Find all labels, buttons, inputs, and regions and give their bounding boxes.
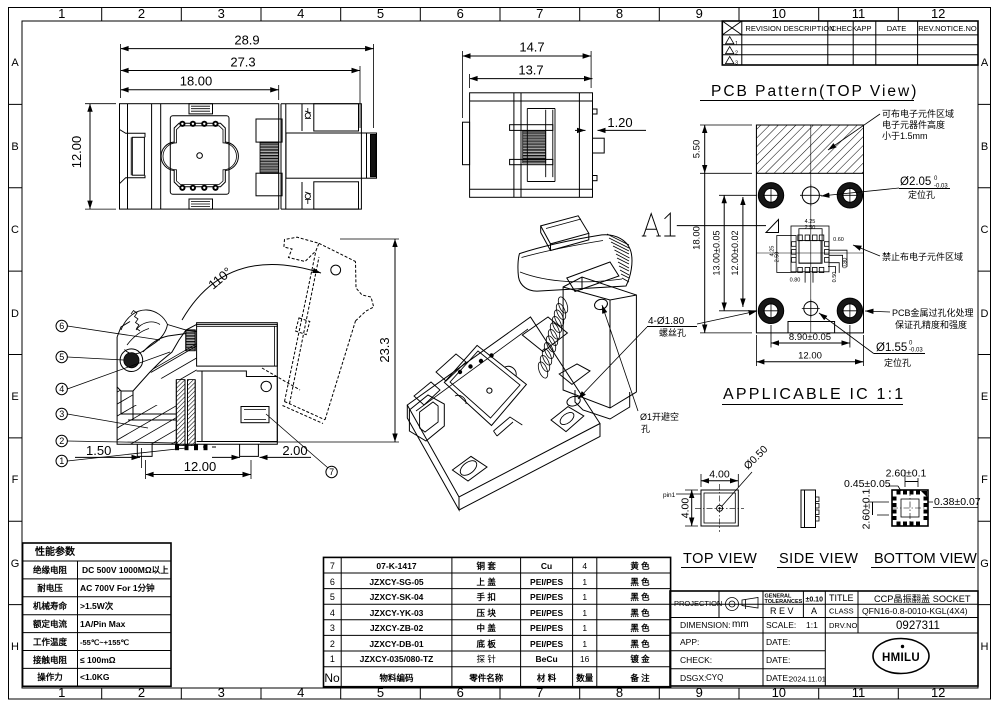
svg-text:6: 6 <box>59 321 64 331</box>
svg-text:黑 色: 黑 色 <box>630 639 650 649</box>
svg-text:1: 1 <box>582 623 587 633</box>
svg-text:AC 700V For 1分钟: AC 700V For 1分钟 <box>80 583 155 593</box>
svg-text:上 盖: 上 盖 <box>477 577 497 587</box>
svg-text:PEI/PES: PEI/PES <box>530 639 563 649</box>
svg-text:5.50: 5.50 <box>692 140 703 159</box>
svg-text:3: 3 <box>218 685 225 700</box>
svg-text:APPLICABLE IC 1:1: APPLICABLE IC 1:1 <box>723 386 905 403</box>
svg-text:0.38±0.07: 0.38±0.07 <box>934 496 981 508</box>
svg-text:CHECK:: CHECK: <box>680 655 712 665</box>
svg-text:CHECK: CHECK <box>831 24 857 33</box>
svg-text:3: 3 <box>735 61 738 67</box>
svg-text:2.60±0.1: 2.60±0.1 <box>886 468 927 480</box>
svg-text:PEI/PES: PEI/PES <box>530 577 563 587</box>
svg-text:DIMENSION:: DIMENSION: <box>680 620 731 630</box>
svg-text:1: 1 <box>330 654 335 664</box>
svg-text:2: 2 <box>138 685 145 700</box>
svg-text:Ø1开避空: Ø1开避空 <box>640 411 679 422</box>
svg-text:1.20: 1.20 <box>607 115 632 130</box>
svg-text:CYQ: CYQ <box>706 673 723 682</box>
svg-text:绝缘电阻: 绝缘电阻 <box>33 565 68 575</box>
svg-text:CLASS: CLASS <box>829 607 854 616</box>
svg-text:1: 1 <box>582 577 587 587</box>
svg-text:0.60: 0.60 <box>833 237 844 243</box>
svg-text:3: 3 <box>59 409 64 419</box>
svg-text:9: 9 <box>696 6 703 21</box>
svg-text:3: 3 <box>330 623 335 633</box>
svg-text:14.7: 14.7 <box>519 40 544 55</box>
svg-text:0.50: 0.50 <box>832 272 838 283</box>
svg-text:电子元器件高度: 电子元器件高度 <box>882 119 945 130</box>
svg-text:12.00±0.02: 12.00±0.02 <box>730 231 740 276</box>
svg-text:pin1: pin1 <box>663 492 676 499</box>
svg-text:可布电子元件区域: 可布电子元件区域 <box>882 108 954 119</box>
svg-text:7: 7 <box>329 467 334 477</box>
svg-text:5: 5 <box>377 6 384 21</box>
svg-text:C: C <box>11 224 19 236</box>
svg-text:23.3: 23.3 <box>377 337 392 362</box>
svg-text:6: 6 <box>457 6 464 21</box>
svg-text:BeCu: BeCu <box>535 654 557 664</box>
svg-text:0.45±0.05: 0.45±0.05 <box>844 478 891 490</box>
svg-text:DATE: DATE <box>887 24 906 33</box>
svg-text:Cu: Cu <box>541 561 552 571</box>
svg-text:6: 6 <box>330 577 335 587</box>
svg-text:E: E <box>11 391 18 403</box>
svg-text:1: 1 <box>59 456 64 466</box>
svg-text:F: F <box>12 474 19 486</box>
svg-text:10: 10 <box>772 6 786 21</box>
svg-text:-55℃~+155℃: -55℃~+155℃ <box>80 638 130 647</box>
svg-text:1: 1 <box>582 639 587 649</box>
svg-text:REVISION DESCRIPTION: REVISION DESCRIPTION <box>745 24 834 33</box>
svg-text:1: 1 <box>58 6 65 21</box>
svg-text:1.50: 1.50 <box>86 443 111 458</box>
svg-text:Ø1.55: Ø1.55 <box>876 342 907 354</box>
svg-text:>1.5W次: >1.5W次 <box>80 601 114 611</box>
svg-text:探 针: 探 针 <box>477 654 497 664</box>
svg-text:螺丝孔: 螺丝孔 <box>659 327 686 338</box>
svg-text:3: 3 <box>218 6 225 21</box>
svg-text:1:1: 1:1 <box>806 620 818 630</box>
svg-text:28.9: 28.9 <box>234 33 259 48</box>
svg-text:E: E <box>981 391 988 403</box>
svg-text:4: 4 <box>582 561 587 571</box>
svg-text:C: C <box>981 224 989 236</box>
svg-text:小于1.5mm: 小于1.5mm <box>882 131 928 141</box>
svg-text:4: 4 <box>297 685 304 700</box>
svg-text:No: No <box>324 671 340 685</box>
svg-text:10: 10 <box>772 685 786 700</box>
svg-text:1: 1 <box>582 608 587 618</box>
svg-text:2: 2 <box>138 6 145 21</box>
svg-text:12: 12 <box>931 685 945 700</box>
svg-text:JZXCY-ZB-02: JZXCY-ZB-02 <box>370 623 424 633</box>
svg-text:H: H <box>981 641 989 653</box>
svg-text:黑 色: 黑 色 <box>630 623 650 633</box>
svg-text:1: 1 <box>58 685 65 700</box>
svg-text:D: D <box>981 308 989 320</box>
svg-text:孔: 孔 <box>641 424 650 434</box>
svg-text:工作温度: 工作温度 <box>33 637 68 647</box>
svg-text:操作力: 操作力 <box>37 672 63 682</box>
svg-text:黑 色: 黑 色 <box>630 608 650 618</box>
svg-text:DATE:: DATE: <box>766 637 790 647</box>
svg-text:12.00: 12.00 <box>69 136 84 169</box>
svg-text:12: 12 <box>931 6 945 21</box>
svg-text:4.00: 4.00 <box>680 498 692 519</box>
svg-text:4: 4 <box>330 608 335 618</box>
svg-text:额定电流: 额定电流 <box>33 619 68 629</box>
svg-text:备 注: 备 注 <box>629 673 650 683</box>
svg-text:机械寿命: 机械寿命 <box>33 601 68 611</box>
svg-text:2024.11.01: 2024.11.01 <box>789 675 826 684</box>
svg-text:B: B <box>11 141 18 153</box>
svg-text:JZXCY-035/080-TZ: JZXCY-035/080-TZ <box>360 654 434 664</box>
svg-text:4.00: 4.00 <box>709 469 730 481</box>
svg-text:JZXCY-YK-03: JZXCY-YK-03 <box>370 608 424 618</box>
svg-text:4-Ø1.80: 4-Ø1.80 <box>648 316 685 327</box>
svg-text:SIDE VIEW: SIDE VIEW <box>779 551 858 567</box>
svg-text:PEI/PES: PEI/PES <box>530 592 563 602</box>
svg-text:压 块: 压 块 <box>477 608 497 618</box>
svg-text:接触电阻: 接触电阻 <box>33 655 68 665</box>
svg-text:27.3: 27.3 <box>230 55 255 70</box>
svg-text:JZXCY-SG-05: JZXCY-SG-05 <box>369 577 424 587</box>
svg-text:镀 金: 镀 金 <box>630 654 650 664</box>
svg-text:DRV.NO: DRV.NO <box>829 621 858 630</box>
svg-text:<1.0KG: <1.0KG <box>80 672 110 682</box>
svg-text:9: 9 <box>696 685 703 700</box>
svg-text:QFN16-0.8-0010-KGL(4X4): QFN16-0.8-0010-KGL(4X4) <box>862 606 968 616</box>
svg-text:JZXCY-SK-04: JZXCY-SK-04 <box>370 592 424 602</box>
svg-text:12.00: 12.00 <box>184 459 217 474</box>
svg-text:DC 500V 1000MΩ以上: DC 500V 1000MΩ以上 <box>82 565 169 575</box>
svg-text:DSGX:: DSGX: <box>680 673 706 683</box>
svg-text:H: H <box>11 641 19 653</box>
svg-text:12.00: 12.00 <box>798 351 822 362</box>
svg-text:1: 1 <box>582 592 587 602</box>
svg-text:1: 1 <box>735 41 738 47</box>
svg-text:0.80: 0.80 <box>843 258 849 269</box>
svg-text:DATE:: DATE: <box>766 655 790 665</box>
svg-text:PEI/PES: PEI/PES <box>530 608 563 618</box>
svg-text:2: 2 <box>735 51 738 57</box>
svg-text:5: 5 <box>59 352 64 362</box>
svg-text:手 扣: 手 扣 <box>477 592 496 602</box>
svg-text:保证孔精度和强度: 保证孔精度和强度 <box>895 319 967 330</box>
svg-text:TITLE: TITLE <box>829 593 854 603</box>
svg-text:A: A <box>11 57 19 69</box>
svg-text:物料编码: 物料编码 <box>379 673 414 683</box>
svg-text:数量: 数量 <box>576 673 594 683</box>
svg-text:BOTTOM VIEW: BOTTOM VIEW <box>874 551 977 567</box>
svg-text:PEI/PES: PEI/PES <box>530 623 563 633</box>
svg-text:mm: mm <box>732 619 749 630</box>
svg-text:材 料: 材 料 <box>536 673 557 683</box>
svg-text:底 板: 底 板 <box>477 639 497 649</box>
svg-text:黄 色: 黄 色 <box>630 561 650 571</box>
svg-text:2.50: 2.50 <box>805 225 816 231</box>
svg-text:SCALE:: SCALE: <box>766 620 796 630</box>
svg-text:2.60±0.1: 2.60±0.1 <box>861 488 873 529</box>
svg-text:PCB金属过孔化处理: PCB金属过孔化处理 <box>892 307 974 318</box>
svg-text:7: 7 <box>330 561 335 571</box>
svg-text:HMILU: HMILU <box>882 652 920 664</box>
svg-text:8: 8 <box>616 6 623 21</box>
svg-text:A: A <box>981 57 989 69</box>
svg-text:黑 色: 黑 色 <box>630 577 650 587</box>
svg-text:REV.NOTICE.NO: REV.NOTICE.NO <box>918 24 977 33</box>
svg-text:PCB Pattern(TOP View): PCB Pattern(TOP View) <box>711 83 918 100</box>
svg-text:0927311: 0927311 <box>896 620 940 632</box>
svg-text:耐电压: 耐电压 <box>37 583 63 593</box>
svg-text:2: 2 <box>330 639 335 649</box>
svg-text:G: G <box>980 558 989 570</box>
svg-text:11: 11 <box>852 685 866 700</box>
svg-text:B: B <box>981 141 988 153</box>
svg-text:性能参数: 性能参数 <box>34 545 76 558</box>
svg-text:1A/Pin Max: 1A/Pin Max <box>80 619 126 629</box>
svg-text:定位孔: 定位孔 <box>884 357 911 368</box>
svg-text:定位孔: 定位孔 <box>908 189 935 200</box>
svg-text:18.00: 18.00 <box>180 74 213 89</box>
svg-text:≤ 100mΩ: ≤ 100mΩ <box>80 655 116 665</box>
svg-text:G: G <box>11 558 20 570</box>
svg-text:4.25: 4.25 <box>805 219 816 225</box>
svg-text:黑 色: 黑 色 <box>630 592 650 602</box>
svg-text:2.00: 2.00 <box>282 443 307 458</box>
svg-text:CCP晶振翻盖 SOCKET: CCP晶振翻盖 SOCKET <box>874 593 971 604</box>
svg-text:PROJECTION: PROJECTION <box>674 599 722 608</box>
svg-text:禁止布电子元件区域: 禁止布电子元件区域 <box>882 251 963 262</box>
svg-text:F: F <box>981 474 988 486</box>
svg-text:±0.10: ±0.10 <box>806 597 824 604</box>
svg-text:8.90±0.05: 8.90±0.05 <box>789 332 831 343</box>
svg-text:铜 套: 铜 套 <box>477 561 497 571</box>
svg-text:0.80: 0.80 <box>790 278 801 284</box>
svg-text:5: 5 <box>330 592 335 602</box>
svg-text:18.00: 18.00 <box>692 226 703 250</box>
svg-text:APP: APP <box>856 24 871 33</box>
svg-text:4: 4 <box>59 384 64 394</box>
svg-text:13.00±0.05: 13.00±0.05 <box>712 231 722 276</box>
svg-text:TOLERANCES: TOLERANCES <box>765 599 803 605</box>
svg-text:11: 11 <box>852 6 866 21</box>
svg-text:-0.03: -0.03 <box>909 348 923 354</box>
svg-text:APP:: APP: <box>680 637 699 647</box>
svg-text:DATE:: DATE: <box>766 673 790 683</box>
svg-text:D: D <box>11 308 19 320</box>
svg-text:A: A <box>811 606 817 616</box>
svg-text:2.50: 2.50 <box>775 252 781 263</box>
svg-text:07-K-1417: 07-K-1417 <box>376 561 416 571</box>
svg-text:JZXCY-DB-01: JZXCY-DB-01 <box>369 639 424 649</box>
svg-text:TOP VIEW: TOP VIEW <box>683 551 757 567</box>
svg-text:R E V: R E V <box>770 606 794 616</box>
svg-text:4: 4 <box>297 6 304 21</box>
svg-text:零件名称: 零件名称 <box>468 673 504 683</box>
svg-text:2: 2 <box>59 436 64 446</box>
svg-text:16: 16 <box>580 654 590 664</box>
svg-text:13.7: 13.7 <box>518 63 543 78</box>
svg-text:中 盖: 中 盖 <box>477 623 497 633</box>
svg-text:7: 7 <box>536 6 543 21</box>
svg-text:Ø2.05: Ø2.05 <box>900 176 931 188</box>
